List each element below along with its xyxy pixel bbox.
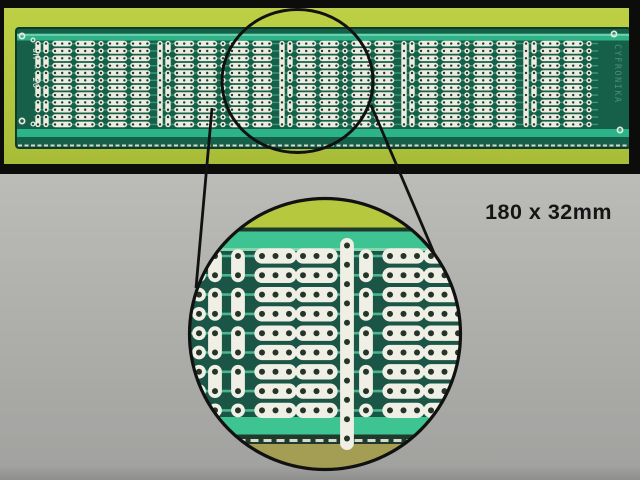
hole xyxy=(489,123,491,125)
hole xyxy=(159,79,161,81)
hole xyxy=(159,57,161,59)
hole xyxy=(45,42,47,44)
hole xyxy=(512,94,514,96)
hole xyxy=(321,42,323,44)
hole xyxy=(579,72,581,74)
hole xyxy=(213,50,215,52)
hole xyxy=(289,64,291,66)
hole xyxy=(312,109,314,111)
hole xyxy=(344,123,346,125)
hole xyxy=(450,101,452,103)
hole xyxy=(450,64,452,66)
hole xyxy=(457,101,459,103)
lens-hole xyxy=(387,407,393,413)
hole xyxy=(367,123,369,125)
hole xyxy=(116,109,118,111)
lens-hole xyxy=(442,311,448,317)
hole xyxy=(328,101,330,103)
hole xyxy=(427,64,429,66)
hole xyxy=(68,57,70,59)
hole xyxy=(68,42,70,44)
hole xyxy=(37,109,39,111)
hole xyxy=(353,87,355,89)
hole xyxy=(45,94,47,96)
hole xyxy=(254,72,256,74)
hole xyxy=(84,72,86,74)
hole xyxy=(100,64,102,66)
hole xyxy=(109,123,111,125)
hole xyxy=(100,94,102,96)
hole xyxy=(261,123,263,125)
hole xyxy=(213,109,215,111)
hole xyxy=(116,42,118,44)
lens-hole xyxy=(428,292,434,298)
hole xyxy=(312,87,314,89)
hole xyxy=(512,109,514,111)
hole xyxy=(245,50,247,52)
hole xyxy=(434,79,436,81)
hole xyxy=(37,42,39,44)
hole xyxy=(466,123,468,125)
hole xyxy=(245,72,247,74)
lens-hole xyxy=(387,272,393,278)
hole xyxy=(123,57,125,59)
hole xyxy=(443,50,445,52)
hole xyxy=(328,64,330,66)
lens-hole xyxy=(387,253,393,259)
hole xyxy=(91,123,93,125)
hole xyxy=(579,50,581,52)
hole xyxy=(312,79,314,81)
hole xyxy=(77,101,79,103)
hole xyxy=(61,101,63,103)
hole xyxy=(403,87,405,89)
lens-hole xyxy=(428,369,434,375)
lens-hole xyxy=(327,407,333,413)
hole xyxy=(556,72,558,74)
hole xyxy=(298,79,300,81)
hole xyxy=(328,50,330,52)
hole xyxy=(565,94,567,96)
hole xyxy=(403,50,405,52)
hole xyxy=(159,116,161,118)
hole xyxy=(245,87,247,89)
hole xyxy=(176,123,178,125)
hole xyxy=(367,42,369,44)
hole xyxy=(54,64,56,66)
hole xyxy=(328,109,330,111)
hole xyxy=(261,87,263,89)
hole xyxy=(572,79,574,81)
hole xyxy=(68,72,70,74)
hole xyxy=(231,64,233,66)
lens-hole xyxy=(363,311,369,317)
hole xyxy=(335,64,337,66)
hole xyxy=(268,57,270,59)
hole xyxy=(335,123,337,125)
lens-hole xyxy=(259,407,265,413)
hole xyxy=(360,94,362,96)
hole xyxy=(321,116,323,118)
hole xyxy=(360,57,362,59)
hole xyxy=(390,109,392,111)
hole xyxy=(572,50,574,52)
hole xyxy=(176,87,178,89)
hole xyxy=(183,101,185,103)
hole xyxy=(556,116,558,118)
hole xyxy=(167,57,169,59)
hole xyxy=(572,116,574,118)
hole xyxy=(383,50,385,52)
hole xyxy=(261,42,263,44)
hole xyxy=(100,79,102,81)
hole xyxy=(37,123,39,125)
hole xyxy=(213,57,215,59)
hole xyxy=(261,64,263,66)
hole xyxy=(199,50,201,52)
hole xyxy=(68,87,70,89)
hole xyxy=(498,79,500,81)
hole xyxy=(190,57,192,59)
lens-hole xyxy=(259,330,265,336)
hole xyxy=(321,123,323,125)
hole xyxy=(390,94,392,96)
hole xyxy=(457,57,459,59)
hole xyxy=(588,50,590,52)
hole xyxy=(549,72,551,74)
hole xyxy=(556,79,558,81)
hole xyxy=(572,57,574,59)
hole xyxy=(588,87,590,89)
hole xyxy=(450,123,452,125)
hole xyxy=(68,109,70,111)
hole xyxy=(231,109,233,111)
hole xyxy=(411,94,413,96)
hole xyxy=(344,79,346,81)
lens-hole xyxy=(235,311,241,317)
hole xyxy=(199,79,201,81)
hole xyxy=(45,87,47,89)
hole xyxy=(77,94,79,96)
hole xyxy=(289,79,291,81)
hole xyxy=(505,94,507,96)
hole xyxy=(245,123,247,125)
hole xyxy=(109,64,111,66)
hole xyxy=(512,116,514,118)
hole xyxy=(238,87,240,89)
hole xyxy=(482,79,484,81)
hole xyxy=(512,57,514,59)
lens-hole xyxy=(259,292,265,298)
hole xyxy=(525,123,527,125)
hole xyxy=(159,72,161,74)
lens-hole xyxy=(344,378,350,384)
lens-hole xyxy=(300,253,306,259)
hole xyxy=(572,87,574,89)
hole xyxy=(238,109,240,111)
hole xyxy=(466,116,468,118)
hole xyxy=(572,109,574,111)
lens-hole xyxy=(259,350,265,356)
hole xyxy=(556,101,558,103)
lens-hole xyxy=(363,330,369,336)
hole xyxy=(565,42,567,44)
hole xyxy=(206,79,208,81)
hole xyxy=(533,123,535,125)
hole xyxy=(588,94,590,96)
lens-hole xyxy=(344,243,350,249)
hole xyxy=(383,94,385,96)
hole xyxy=(443,109,445,111)
hole xyxy=(116,50,118,52)
hole xyxy=(199,72,201,74)
hole xyxy=(123,42,125,44)
hole xyxy=(183,87,185,89)
hole xyxy=(533,42,535,44)
hole xyxy=(281,116,283,118)
hole xyxy=(344,50,346,52)
hole xyxy=(238,72,240,74)
lens-hole xyxy=(300,369,306,375)
lens-hole xyxy=(259,272,265,278)
hole xyxy=(305,101,307,103)
hole xyxy=(281,64,283,66)
hole xyxy=(434,94,436,96)
hole xyxy=(457,72,459,74)
lens-hole xyxy=(286,311,292,317)
hole xyxy=(123,94,125,96)
hole xyxy=(68,123,70,125)
hole xyxy=(176,50,178,52)
hole xyxy=(475,57,477,59)
hole xyxy=(146,101,148,103)
hole xyxy=(132,109,134,111)
hole xyxy=(190,87,192,89)
hole xyxy=(176,101,178,103)
hole xyxy=(100,109,102,111)
hole xyxy=(498,72,500,74)
hole xyxy=(403,72,405,74)
hole xyxy=(353,94,355,96)
hole xyxy=(335,72,337,74)
hole xyxy=(383,87,385,89)
hole xyxy=(109,42,111,44)
hole xyxy=(533,72,535,74)
hole xyxy=(556,57,558,59)
hole xyxy=(199,109,201,111)
hole xyxy=(549,64,551,66)
hole xyxy=(542,57,544,59)
hole xyxy=(498,57,500,59)
hole xyxy=(376,42,378,44)
hole xyxy=(146,109,148,111)
lens-hole xyxy=(414,272,420,278)
hole xyxy=(238,116,240,118)
hole xyxy=(222,123,224,125)
hole xyxy=(344,116,346,118)
hole xyxy=(390,116,392,118)
hole xyxy=(427,123,429,125)
hole xyxy=(109,116,111,118)
hole xyxy=(565,50,567,52)
hole xyxy=(206,94,208,96)
hole xyxy=(37,116,39,118)
hole xyxy=(54,94,56,96)
hole xyxy=(383,109,385,111)
hole xyxy=(116,64,118,66)
hole xyxy=(289,50,291,52)
hole xyxy=(533,109,535,111)
lens-hole xyxy=(442,369,448,375)
lens-hole xyxy=(401,369,407,375)
hole xyxy=(84,109,86,111)
hole xyxy=(475,101,477,103)
hole xyxy=(254,123,256,125)
hole xyxy=(37,94,39,96)
hole xyxy=(475,116,477,118)
hole xyxy=(588,101,590,103)
hole xyxy=(549,116,551,118)
hole xyxy=(498,94,500,96)
lens-hole xyxy=(273,350,279,356)
hole xyxy=(360,87,362,89)
hole xyxy=(466,57,468,59)
hole xyxy=(84,101,86,103)
hole xyxy=(123,101,125,103)
hole xyxy=(245,94,247,96)
hole xyxy=(84,42,86,44)
hole xyxy=(183,64,185,66)
hole xyxy=(146,116,148,118)
hole xyxy=(505,109,507,111)
hole xyxy=(190,42,192,44)
hole xyxy=(549,57,551,59)
bottom-bus-stripe xyxy=(17,129,629,137)
hole xyxy=(411,72,413,74)
hole xyxy=(475,94,477,96)
hole xyxy=(268,72,270,74)
hole xyxy=(542,72,544,74)
hole xyxy=(572,101,574,103)
hole xyxy=(403,94,405,96)
hole xyxy=(512,42,514,44)
hole xyxy=(254,87,256,89)
hole xyxy=(376,64,378,66)
hole xyxy=(475,123,477,125)
hole xyxy=(475,79,477,81)
hole xyxy=(443,42,445,44)
hole xyxy=(238,101,240,103)
hole xyxy=(328,87,330,89)
lens-hole xyxy=(300,388,306,394)
hole xyxy=(328,57,330,59)
hole xyxy=(443,116,445,118)
lens-hole xyxy=(414,407,420,413)
hole xyxy=(213,94,215,96)
hole xyxy=(525,101,527,103)
hole xyxy=(139,79,141,81)
lens-hole xyxy=(401,388,407,394)
hole xyxy=(77,50,79,52)
hole xyxy=(450,94,452,96)
hole xyxy=(139,87,141,89)
lens-hole xyxy=(286,330,292,336)
hole xyxy=(61,116,63,118)
hole xyxy=(183,72,185,74)
hole xyxy=(443,57,445,59)
hole xyxy=(91,116,93,118)
hole xyxy=(466,72,468,74)
hole xyxy=(268,79,270,81)
hole xyxy=(245,109,247,111)
hole xyxy=(367,87,369,89)
hole xyxy=(443,64,445,66)
hole xyxy=(176,72,178,74)
hole xyxy=(525,109,527,111)
lens-hole xyxy=(259,369,265,375)
hole xyxy=(353,57,355,59)
hole xyxy=(411,42,413,44)
lens-hole xyxy=(363,350,369,356)
hole xyxy=(298,116,300,118)
hole xyxy=(206,87,208,89)
lens-hole xyxy=(286,369,292,375)
hole xyxy=(321,101,323,103)
hole xyxy=(268,101,270,103)
hole xyxy=(565,87,567,89)
lens-hole xyxy=(401,407,407,413)
hole xyxy=(450,116,452,118)
hole xyxy=(167,72,169,74)
hole xyxy=(579,101,581,103)
hole xyxy=(77,123,79,125)
hole xyxy=(565,79,567,81)
hole xyxy=(245,79,247,81)
hole xyxy=(579,57,581,59)
hole xyxy=(68,64,70,66)
lens-hole xyxy=(387,369,393,375)
hole xyxy=(109,94,111,96)
hole xyxy=(91,87,93,89)
hole xyxy=(403,57,405,59)
hole xyxy=(199,64,201,66)
lens-hole xyxy=(196,311,202,317)
hole xyxy=(420,94,422,96)
hole xyxy=(54,79,56,81)
hole xyxy=(434,72,436,74)
hole xyxy=(100,116,102,118)
lens-hole xyxy=(344,436,350,442)
hole xyxy=(305,72,307,74)
hole xyxy=(77,64,79,66)
hole xyxy=(190,94,192,96)
hole xyxy=(261,79,263,81)
hole xyxy=(505,57,507,59)
hole xyxy=(321,94,323,96)
hole xyxy=(245,101,247,103)
lens-hole xyxy=(259,311,265,317)
hole xyxy=(206,116,208,118)
hole xyxy=(139,94,141,96)
hole xyxy=(457,109,459,111)
hole xyxy=(443,87,445,89)
hole xyxy=(84,57,86,59)
hole xyxy=(403,64,405,66)
hole xyxy=(533,116,535,118)
hole xyxy=(549,109,551,111)
hole xyxy=(289,94,291,96)
hole xyxy=(411,50,413,52)
